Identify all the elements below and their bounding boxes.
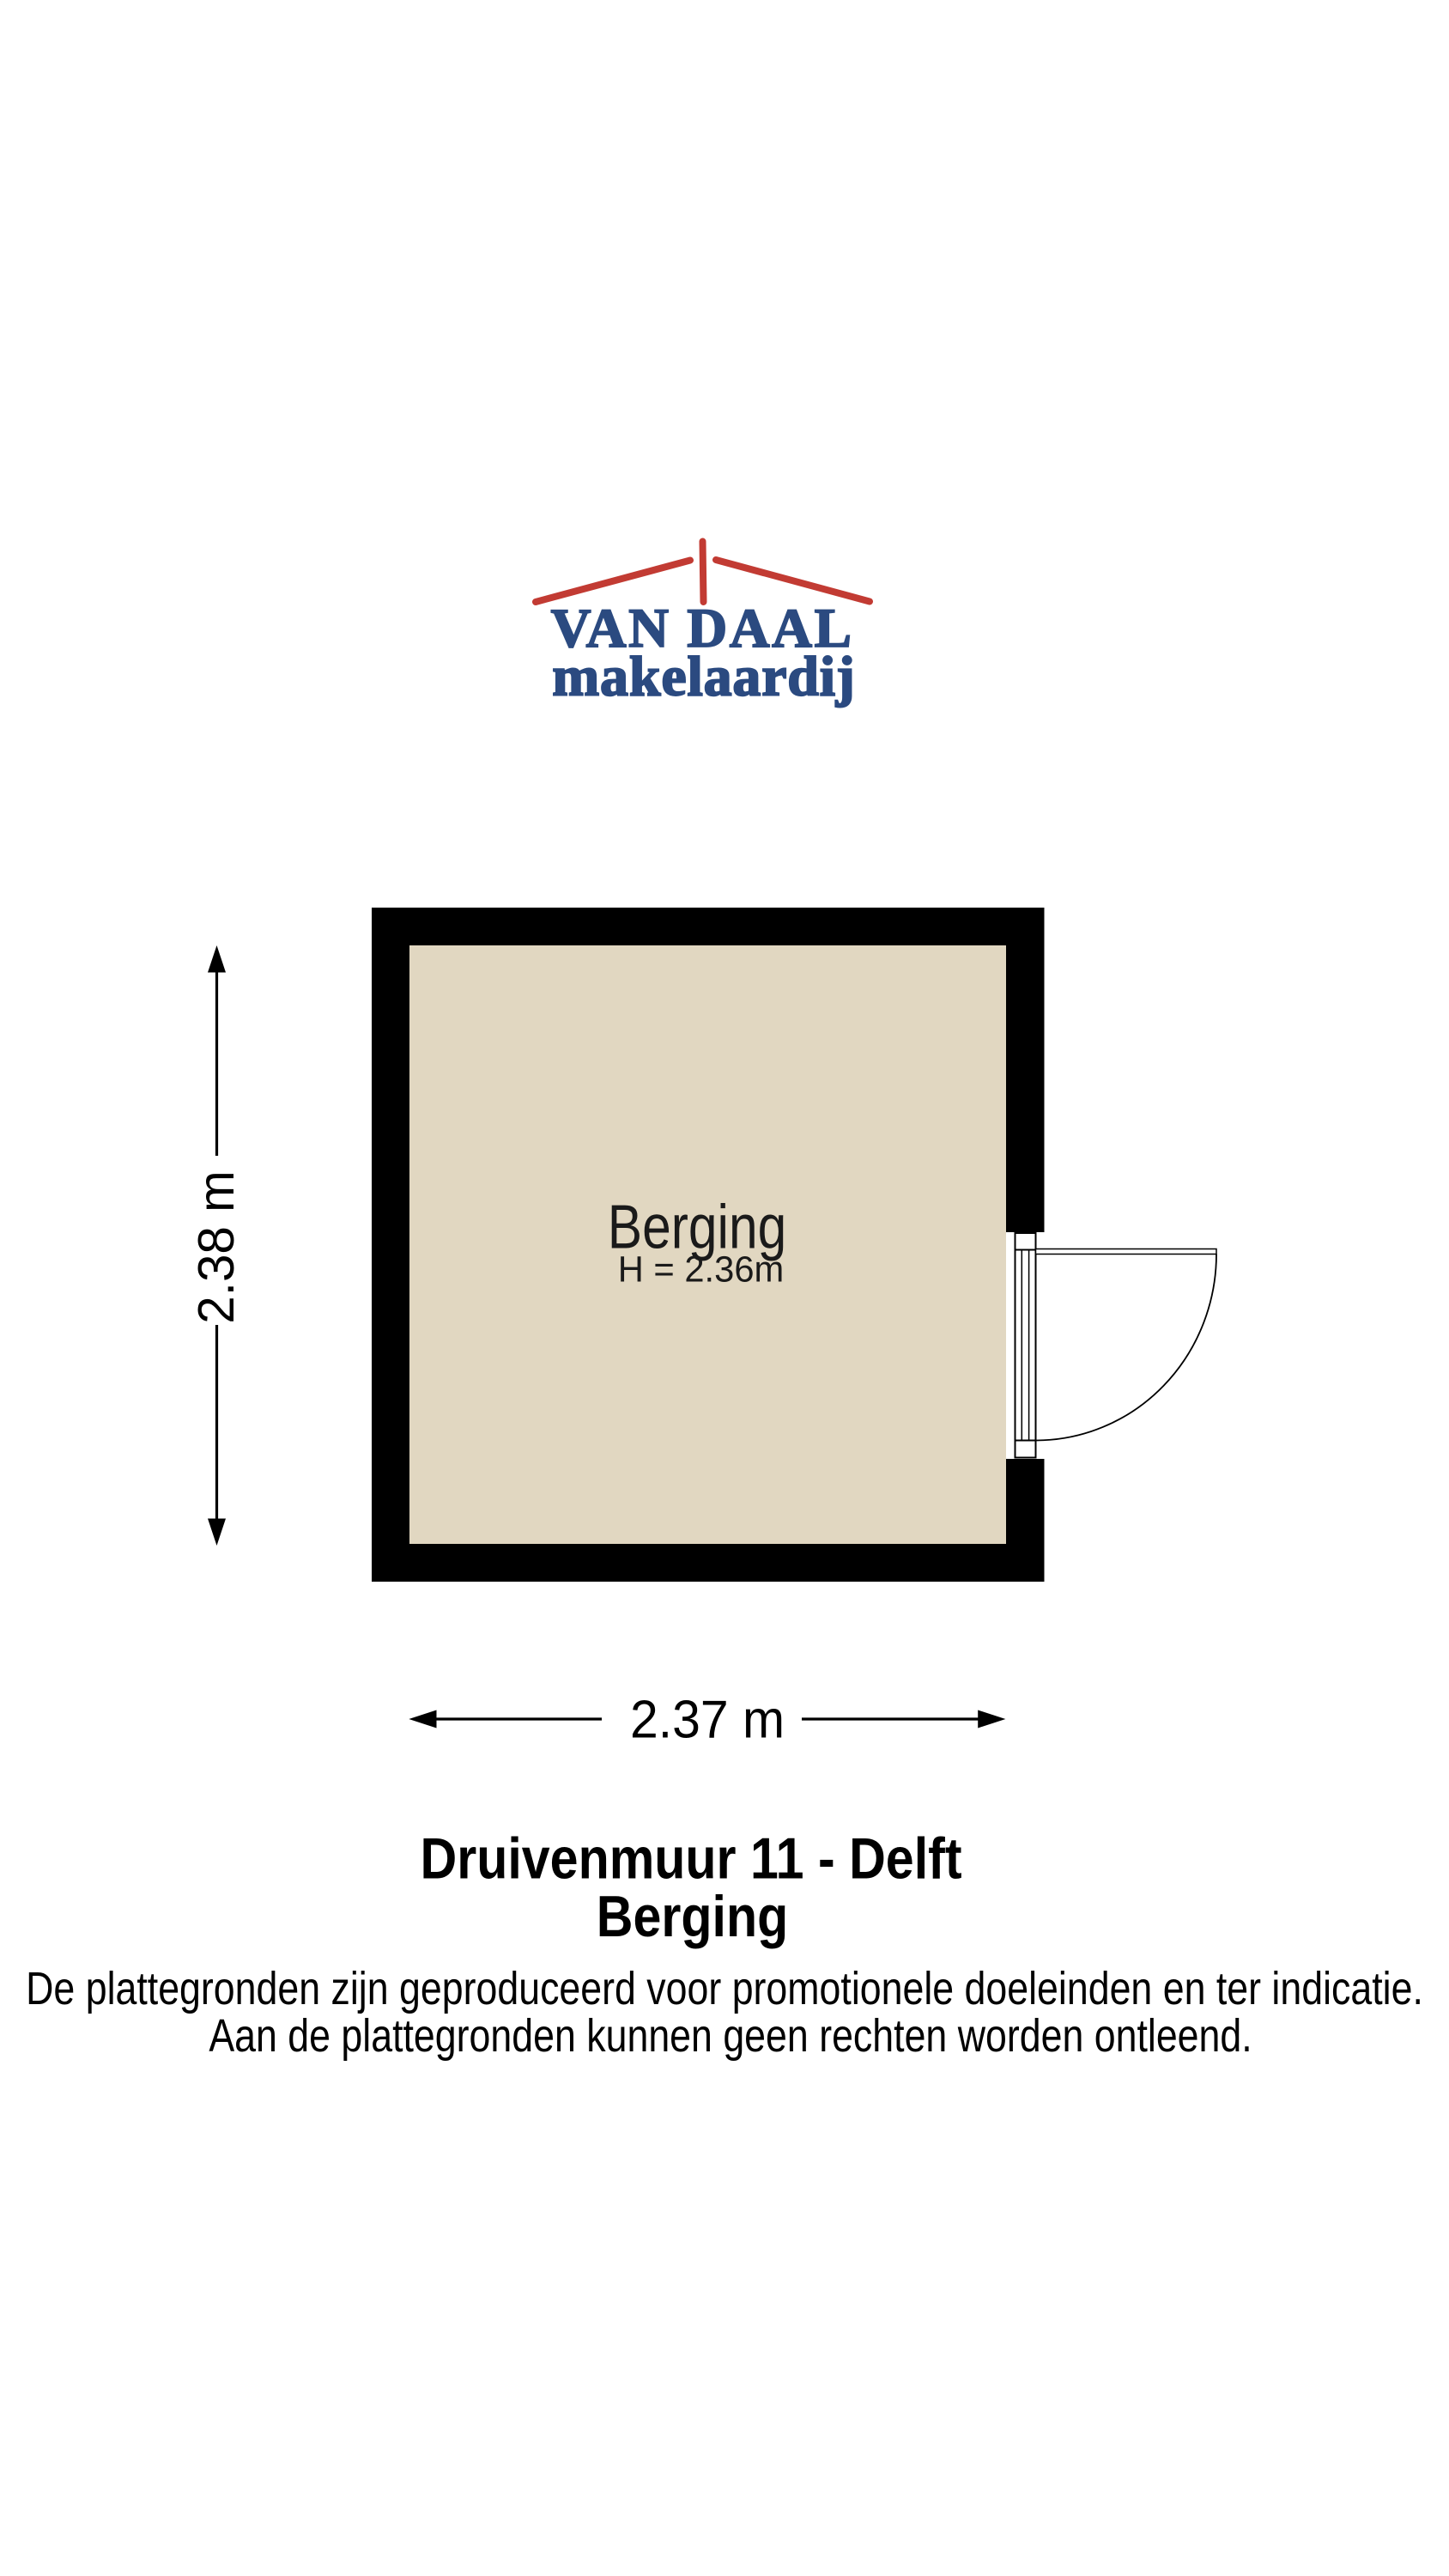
svg-text:Druivenmuur 11 - Delft: Druivenmuur 11 - Delft [420,1826,961,1892]
svg-text:De plattegronden zijn geproduc: De plattegronden zijn geproduceerd voor … [26,1962,1423,2014]
svg-text:2.38 m: 2.38 m [189,1170,245,1324]
svg-text:H = 2.36m: H = 2.36m [618,1249,785,1290]
svg-text:makelaardij: makelaardij [552,646,855,708]
svg-text:Berging: Berging [597,1883,788,1949]
svg-text:Aan de plattegronden kunnen ge: Aan de plattegronden kunnen geen rechten… [209,2009,1252,2062]
svg-text:2.37 m: 2.37 m [630,1689,785,1749]
